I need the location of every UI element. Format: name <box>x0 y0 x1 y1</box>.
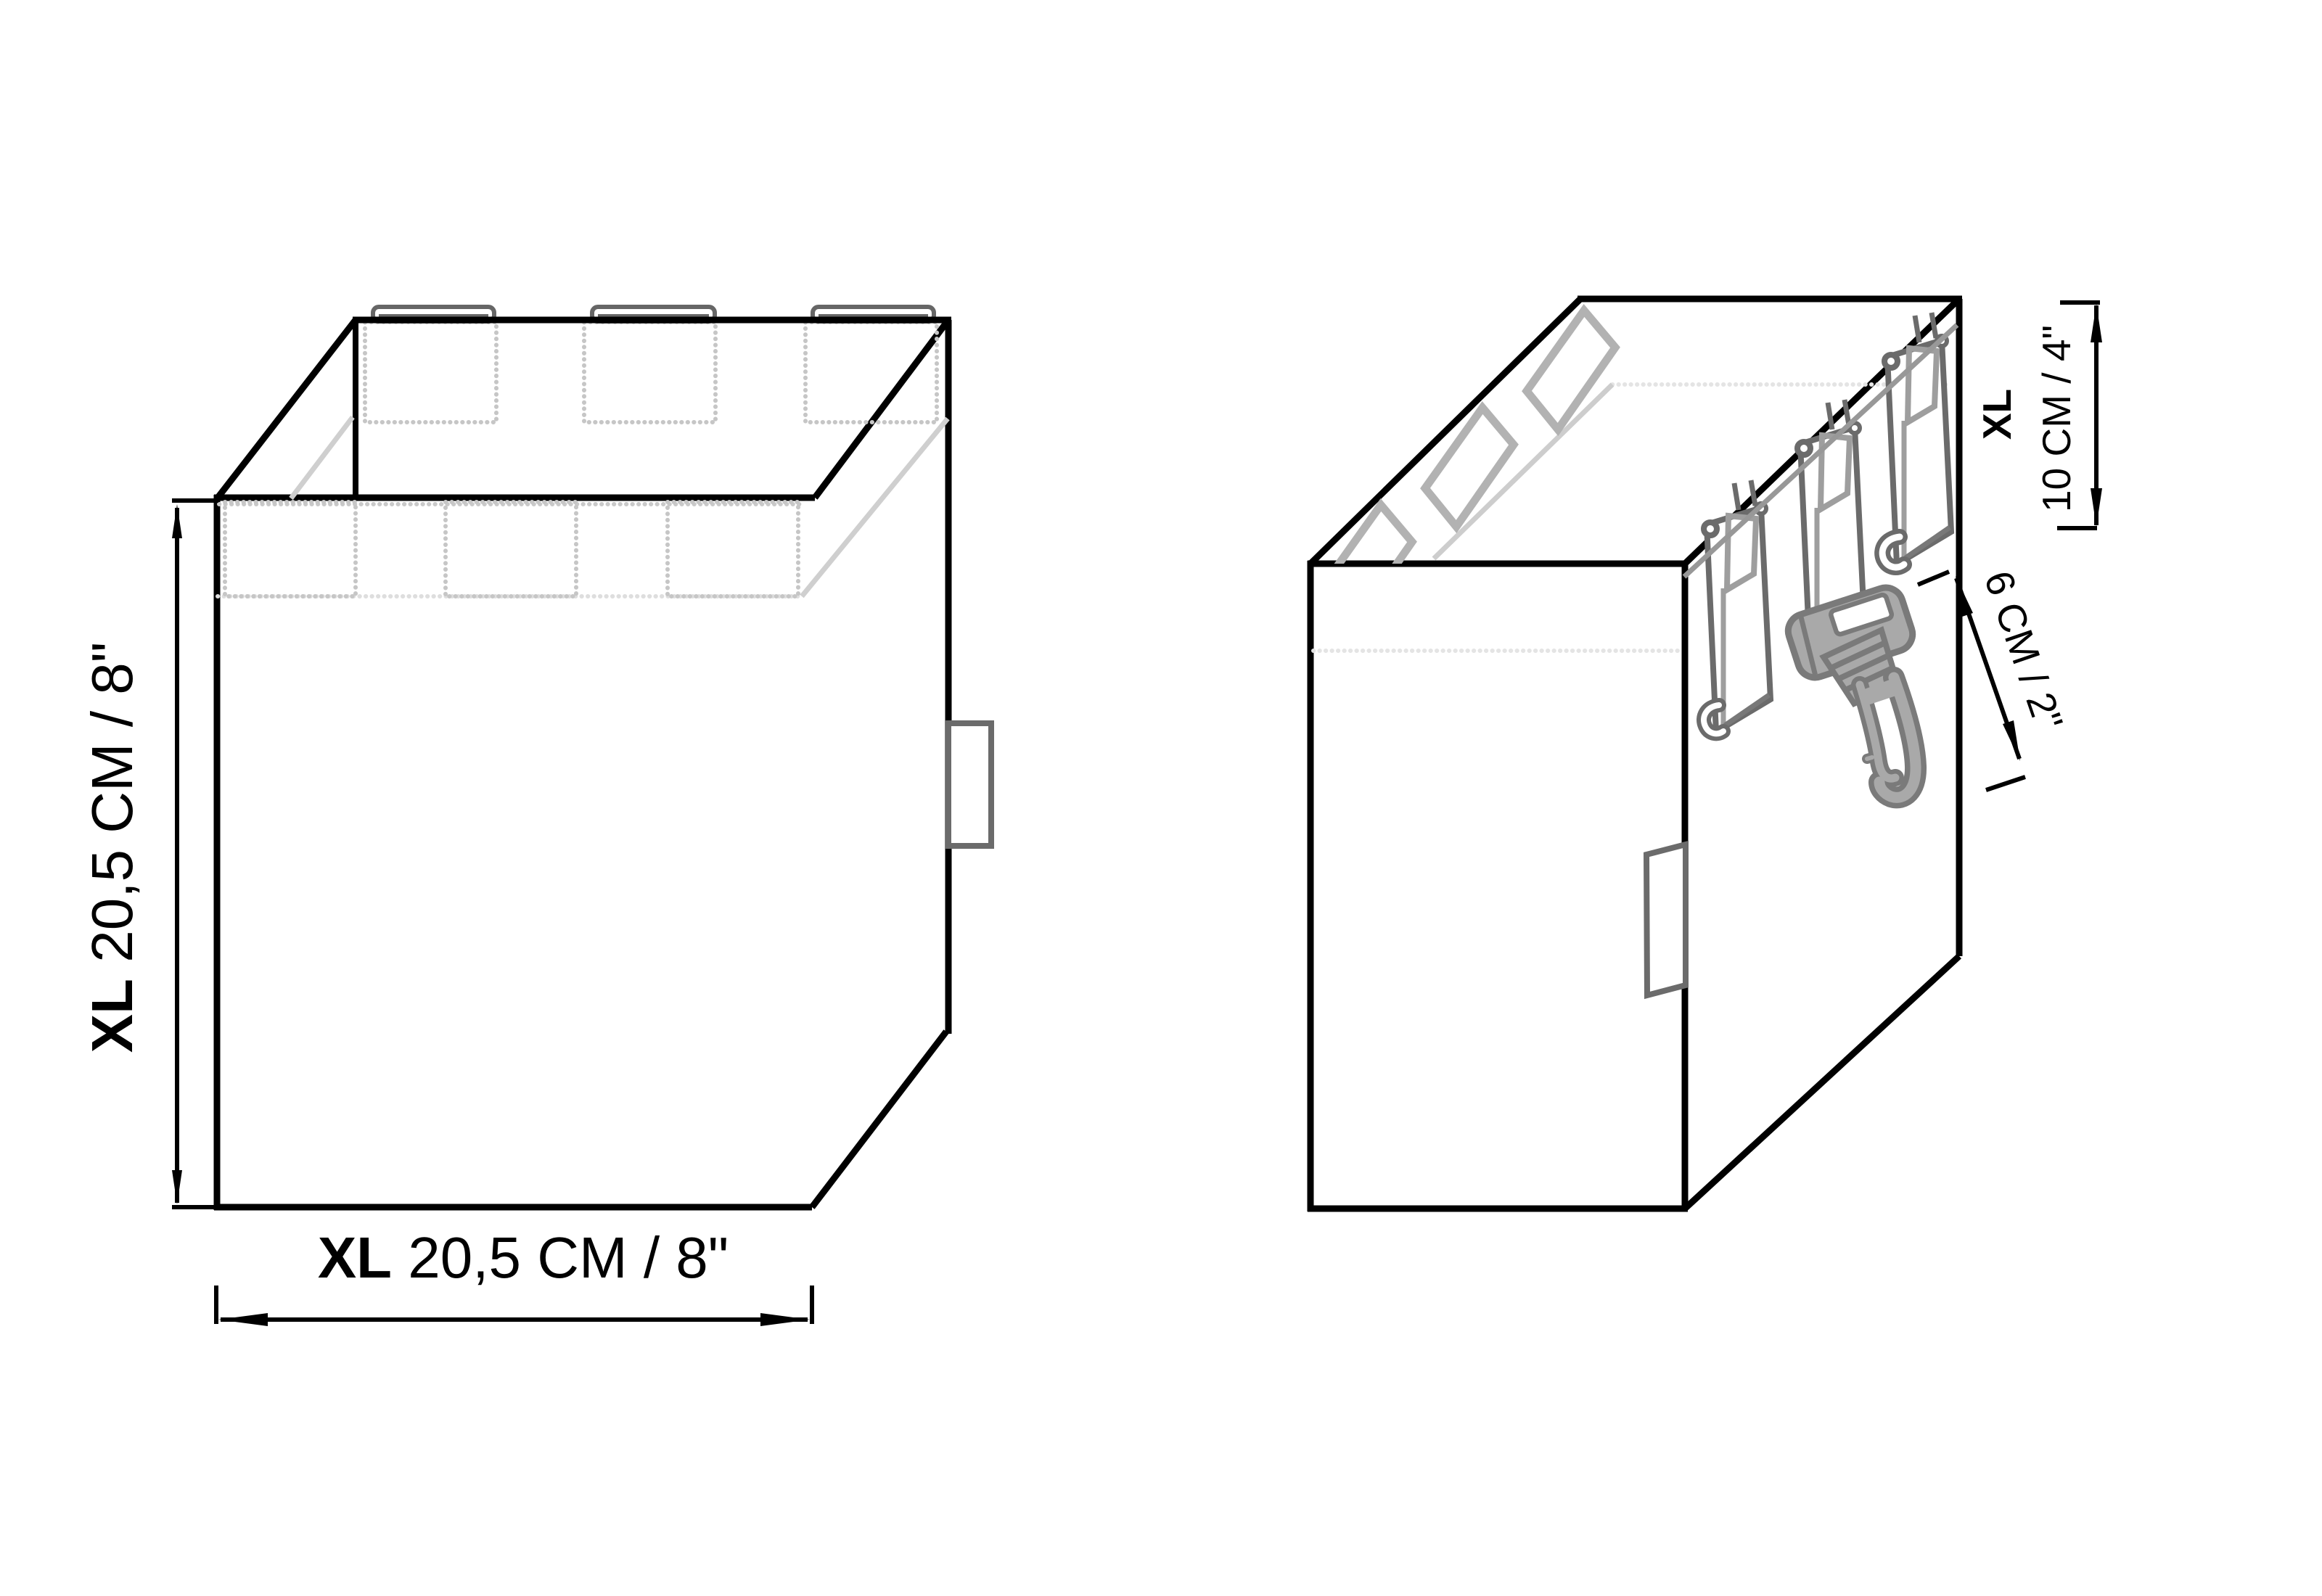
svg-text:XL 20,5 CM / 8": XL 20,5 CM / 8" <box>318 1225 729 1290</box>
svg-text:XL 20,5 CM / 8": XL 20,5 CM / 8" <box>80 642 144 1053</box>
svg-text:XL: XL <box>1974 389 2019 440</box>
svg-text:10 CM / 4": 10 CM / 4" <box>2034 325 2079 512</box>
svg-text:6 CM / 2": 6 CM / 2" <box>1976 565 2072 736</box>
